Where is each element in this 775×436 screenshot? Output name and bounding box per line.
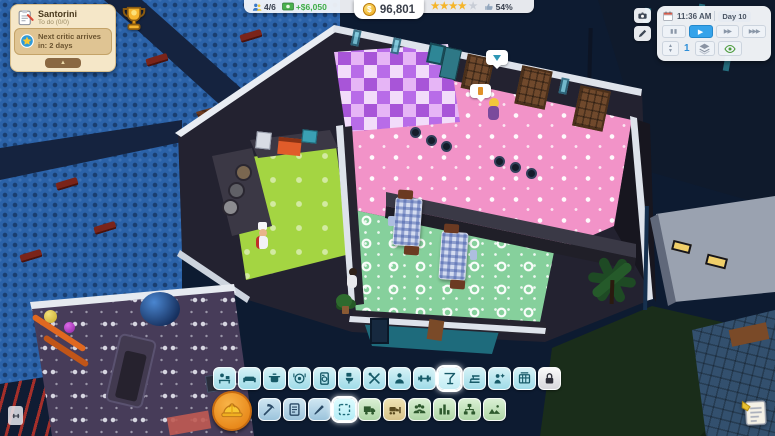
ball-pit-dome[interactable] [140,292,180,326]
truck-icon [362,402,377,417]
dining-chair[interactable] [404,245,420,255]
bar-stool[interactable] [441,141,452,152]
paint-brush-button[interactable] [308,398,331,421]
dumbbell-icon [417,371,432,386]
clock-time: 11:36 AM [677,12,711,21]
camera-icon [637,10,648,21]
terrace-chair[interactable] [427,319,445,341]
spa-person-button[interactable] [488,367,511,390]
palm-tree[interactable] [584,258,640,302]
kitchen-sink[interactable] [301,129,317,143]
play-glyph: ▶ [698,28,703,36]
floor-stepper[interactable]: ▲ ▼ [662,41,679,56]
achievements-trophy-button[interactable] [119,3,149,35]
stats-bar: 4/6 +$6,050 ★★★★ ★ 54% $ 96,801 [244,0,534,13]
kitchen-stove[interactable] [277,137,302,156]
fff-glyph: ▶▶▶ [749,28,760,35]
pause-glyph: ▮▮ [670,28,678,35]
kitchen-pot-button[interactable] [263,367,286,390]
sofa-icon [242,371,257,386]
chair-pad [388,216,395,226]
capacity-value: 4/6 [264,2,276,12]
profit-stat: +$6,050 [282,2,327,12]
satisfaction-value: 54% [496,2,513,12]
blueprint-plan-button[interactable] [283,398,306,421]
fast-forward-button[interactable]: ▶▶ [716,25,740,38]
day-counter: Day 10 [718,11,750,22]
floor-down-arrow: ▼ [668,49,673,54]
utilities-tools-button[interactable] [363,367,386,390]
build-toolbar [258,398,506,421]
pause-button[interactable]: ▮▮ [662,25,686,38]
stove-burner[interactable] [235,164,252,181]
quest-text: Next critic arrives in: 2 days [38,32,107,51]
org-chart-button[interactable] [458,398,481,421]
exercise-ball-magenta[interactable] [64,322,75,333]
staff-room-button[interactable] [388,367,411,390]
front-desk-button[interactable] [213,367,236,390]
clipboard-svg [16,8,35,27]
pen-icon [637,28,648,39]
chair-pad [470,250,477,260]
waiter-body [347,275,357,288]
staff-group-button[interactable] [408,398,431,421]
staff-group-icon [412,402,427,417]
collapse-arrow-glyph: ▲ [60,60,66,66]
build-mode-button[interactable] [212,391,252,431]
rooms-toolbar [213,367,561,390]
audience-seats-button[interactable] [463,367,486,390]
chef-body [256,236,268,249]
edit-pen-button[interactable] [634,26,651,41]
divider [714,11,715,21]
toilet-icon [342,371,357,386]
bartender-body [488,106,499,120]
delivery-truck-button[interactable] [358,398,381,421]
blueprint-icon [287,402,302,417]
marquee-select-icon [337,402,352,417]
cocktail-thought-bubble [486,50,508,65]
cash-icon [282,2,294,11]
terrace-door[interactable] [370,318,389,344]
profit-value: +$6,050 [296,2,327,12]
drink-icon [478,87,483,95]
view-controls: ▲ ▼ 1 [662,41,766,56]
bar-stool[interactable] [526,168,537,179]
dining-table[interactable] [438,231,468,281]
terrain-rocks-button[interactable] [483,398,506,421]
org-chart-icon [462,402,477,417]
arcade-machines-button[interactable] [513,367,536,390]
speed-controls: ▮▮ ▶ ▶▶ ▶▶▶ [662,25,766,38]
paintbrush-icon [312,402,327,417]
plant-pot [342,306,349,314]
select-marquee-button[interactable] [333,398,356,421]
dining-table[interactable] [392,197,422,247]
visibility-eye-button[interactable] [718,41,742,56]
dining-chair[interactable] [450,279,466,289]
notepad-icon [739,395,770,429]
crossed-tools-icon [367,371,382,386]
fastest-forward-button[interactable]: ▶▶▶ [742,25,766,38]
money-display: $ 96,801 [354,0,424,19]
padlock-icon [542,371,557,386]
lounge-sofa-button[interactable] [238,367,261,390]
demolish-pickaxe-button[interactable] [258,398,281,421]
game-screen: Santorini To do (0/0) Next critic arrive… [0,0,775,436]
quest-panel: Santorini To do (0/0) Next critic arrive… [10,4,116,72]
dining-chair[interactable] [398,189,414,199]
locked-slot-button[interactable] [538,367,561,390]
stars-filled: ★★★★ [431,2,467,12]
bulldozer-icon [387,402,402,417]
palm-trunk [610,280,615,304]
ff-glyph: ▶▶ [724,28,731,35]
thumbs-up-icon [484,2,494,12]
satisfaction-stat: 54% [484,2,513,12]
quest-panel-header: Santorini To do (0/0) [14,8,112,28]
cocktail-icon [442,371,457,386]
critic-star-badge-icon [19,33,35,49]
front-desk-icon [217,371,232,386]
quest-notification[interactable]: Next critic arrives in: 2 days [14,28,112,55]
calendar-icon [662,10,674,22]
fridge-icon [317,371,332,386]
pickaxe-icon [262,402,277,417]
bar-cocktail-button[interactable] [438,367,461,390]
dining-plate-button[interactable] [288,367,311,390]
capacity-stat: 4/6 [252,2,276,12]
gym-marker-badge [8,406,23,425]
bar-stool[interactable] [494,156,505,167]
pot-icon [267,371,282,386]
time-panel: 11:36 AM Day 10 ▮▮ ▶ ▶▶ ▶▶▶ ▲ ▼ 1 [657,6,771,61]
collapse-quest-panel-button[interactable]: ▲ [45,58,81,68]
stove-burner[interactable] [228,182,245,199]
kitchen-appliance[interactable] [255,131,272,149]
gym-dumbbell-button[interactable] [413,367,436,390]
trophy-icon [119,3,149,35]
bar-stool[interactable] [410,127,421,138]
bar-stool[interactable] [426,135,437,146]
floor-number: 1 [684,43,690,54]
star-rating: ★★★★ ★ [431,2,478,12]
treadmill-belt [115,350,147,402]
business-stats-button[interactable] [433,398,456,421]
dining-chair[interactable] [444,223,460,233]
todo-clipboard-icon [16,8,35,27]
todo-counter: To do (0/0) [38,19,110,26]
notes-button[interactable] [739,395,770,429]
time-row: 11:36 AM Day 10 [662,10,766,22]
plate-icon [292,371,307,386]
eye-icon [723,43,737,55]
terrain-icon [487,402,502,417]
drink-order-bubble [470,84,491,98]
hard-hat-icon [219,398,245,424]
guests-icon [252,2,262,12]
hotel-name: Santorini [38,9,110,19]
bulldozer-button[interactable] [383,398,406,421]
spa-icon [492,371,507,386]
layers-button[interactable] [695,41,715,56]
play-button[interactable]: ▶ [689,25,713,38]
layers-icon [698,42,711,55]
star-empty: ★ [469,2,478,12]
bar-stool[interactable] [510,162,521,173]
money-value: 96,801 [380,4,415,16]
seat-rows-icon [467,371,482,386]
stove-burner[interactable] [222,199,239,216]
mini-dumbbell-icon [11,411,21,421]
star-badge-svg [19,33,35,49]
stats-bars-icon [437,402,452,417]
bathroom-toilet-button[interactable] [338,367,361,390]
staff-person-icon [392,371,407,386]
screenshot-camera-button[interactable] [634,8,651,23]
coin-icon: $ [363,3,376,16]
cocktail-icon [493,55,501,61]
appliance-fridge-button[interactable] [313,367,336,390]
machines-icon [517,371,532,386]
